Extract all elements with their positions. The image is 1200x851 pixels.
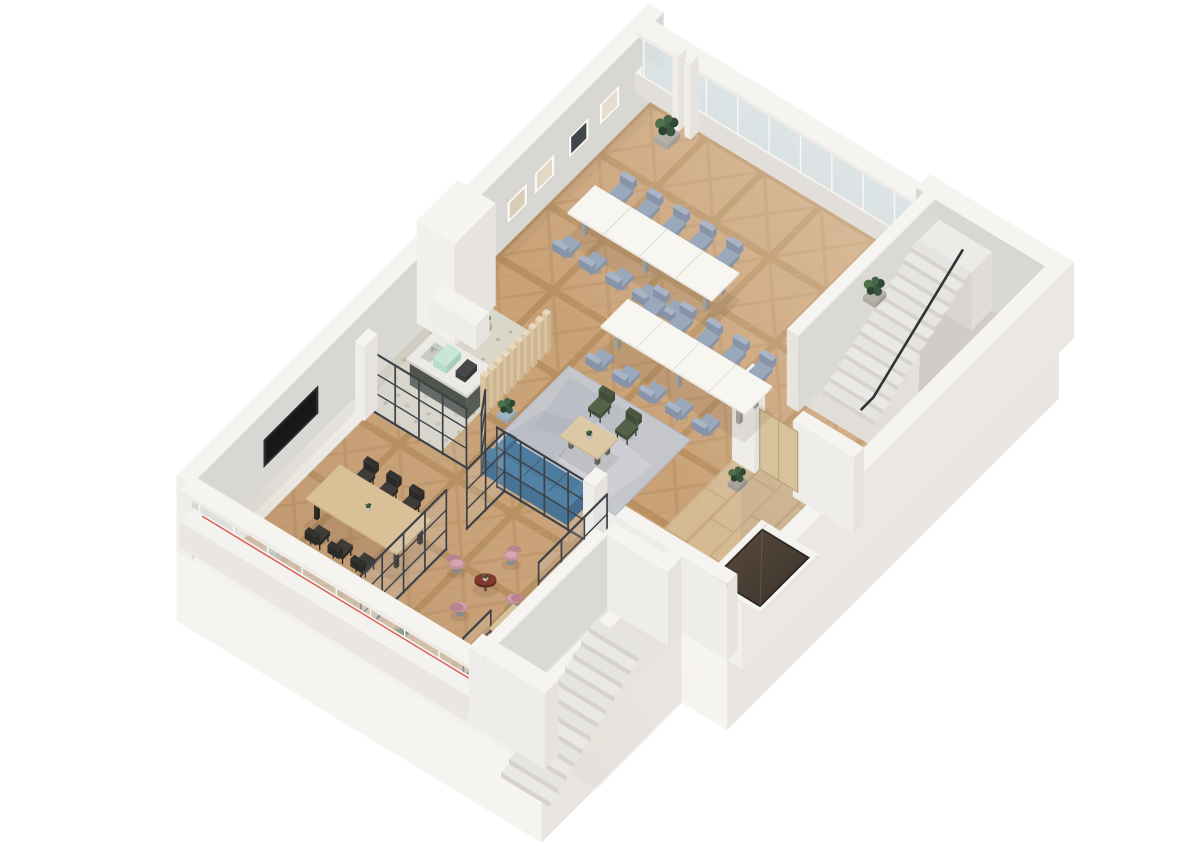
- wall-stub-a: [355, 328, 378, 421]
- corner-pillar-2: [684, 52, 698, 140]
- floor-plan-3d-render: [0, 0, 1200, 851]
- floor-plan-canvas: [0, 0, 1200, 851]
